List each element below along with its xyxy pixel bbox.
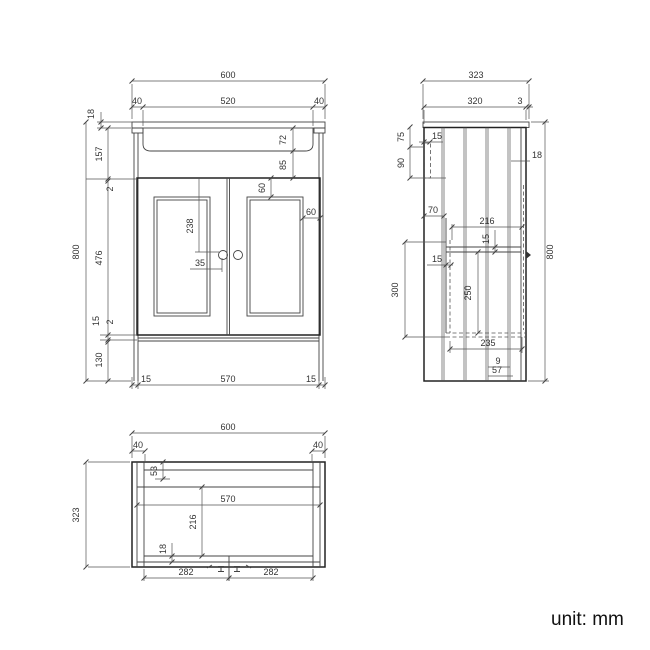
dim-plan-inner-span: 570 bbox=[220, 494, 235, 504]
dim-side-bracket-height: 90 bbox=[396, 158, 406, 168]
dim-front-bottom-rail: 15 bbox=[91, 316, 101, 326]
dim-front-plinth-height: 130 bbox=[94, 352, 104, 367]
dim-front-apron-height: 157 bbox=[94, 146, 104, 161]
dim-plan-front-rail: 18 bbox=[158, 544, 168, 554]
front-worktop bbox=[132, 122, 325, 128]
dim-side-shelf-to-bottom: 250 bbox=[463, 285, 473, 300]
dim-front-knob-drop: 238 bbox=[185, 218, 195, 233]
side-view: 323 320 3 75 90 15 18 70 216 15 15 300 2… bbox=[390, 70, 555, 384]
plan-extension-lines bbox=[88, 436, 325, 581]
dim-side-body-depth: 320 bbox=[467, 96, 482, 106]
front-view: 600 40 520 40 18 157 2 476 15 2 130 800 … bbox=[71, 70, 328, 389]
side-bracket-hidden bbox=[425, 143, 431, 178]
front-bottom-rails bbox=[138, 338, 319, 341]
side-worktop bbox=[423, 122, 529, 128]
dim-side-shelf-drop: 300 bbox=[390, 282, 400, 297]
dim-plan-back-rail: 53 bbox=[149, 466, 159, 476]
front-doors-outline bbox=[137, 178, 320, 335]
dim-plan-side-right: 40 bbox=[313, 440, 323, 450]
front-left-panel-outer bbox=[154, 197, 210, 316]
vanity-technical-drawing: 600 40 520 40 18 157 2 476 15 2 130 800 … bbox=[0, 0, 650, 650]
dim-side-bracket-depth: 15 bbox=[432, 131, 442, 141]
dim-front-door-height: 476 bbox=[94, 250, 104, 265]
front-left-panel-inner bbox=[157, 200, 207, 313]
front-right-tab bbox=[314, 128, 325, 133]
dim-side-overall-height: 800 bbox=[545, 244, 555, 259]
dim-plan-door-depth: 216 bbox=[188, 514, 198, 529]
front-left-knob bbox=[219, 251, 228, 260]
dim-plan-door-left: 282 bbox=[178, 567, 193, 577]
unit-label: unit: mm bbox=[551, 609, 624, 630]
dim-plan-side-left: 40 bbox=[133, 440, 143, 450]
dim-front-foot-right: 15 bbox=[306, 374, 316, 384]
front-side-panels bbox=[134, 133, 323, 381]
front-left-tab bbox=[132, 128, 143, 133]
dim-front-overall-width: 600 bbox=[220, 70, 235, 80]
dim-front-basin-width: 520 bbox=[220, 96, 235, 106]
dim-side-shelf-depth: 216 bbox=[479, 216, 494, 226]
technical-drawing-page: 600 40 520 40 18 157 2 476 15 2 130 800 … bbox=[0, 0, 650, 650]
dim-side-foot-b: 57 bbox=[492, 365, 502, 375]
dim-front-gap-bottom: 2 bbox=[105, 319, 115, 324]
plan-view: 600 40 40 323 53 570 216 18 282 282 bbox=[71, 422, 328, 581]
front-right-panel-inner bbox=[250, 200, 300, 313]
dim-side-side-inset: 15 bbox=[432, 254, 442, 264]
dim-front-basin-gap: 85 bbox=[278, 160, 288, 170]
front-right-knob bbox=[234, 251, 243, 260]
dim-front-panel-top-inset: 60 bbox=[257, 183, 267, 193]
dim-front-worktop-thickness: 18 bbox=[86, 109, 96, 119]
dim-side-plank-width: 70 bbox=[428, 205, 438, 215]
dim-side-overall-depth: 323 bbox=[468, 70, 483, 80]
plan-dimension-ticks bbox=[84, 431, 328, 581]
dim-front-panel-side-inset: 60 bbox=[306, 207, 316, 217]
dim-front-knob-offset: 35 bbox=[195, 258, 205, 268]
front-right-panel-outer bbox=[247, 197, 303, 316]
dim-front-overall-height: 800 bbox=[71, 244, 81, 259]
dim-front-overhang-right: 40 bbox=[314, 96, 324, 106]
side-knob bbox=[526, 251, 531, 259]
front-extension-lines bbox=[86, 84, 325, 389]
front-dimension-lines bbox=[86, 81, 325, 385]
dim-plan-overall-width: 600 bbox=[220, 422, 235, 432]
dim-plan-door-right: 282 bbox=[263, 567, 278, 577]
dim-front-overhang-left: 40 bbox=[132, 96, 142, 106]
dim-front-inner-span: 570 bbox=[220, 374, 235, 384]
dim-front-foot-left: 15 bbox=[141, 374, 151, 384]
dim-front-gap-top: 2 bbox=[105, 186, 115, 191]
dim-side-bracket-top: 75 bbox=[396, 132, 406, 142]
side-extension-lines bbox=[405, 84, 549, 381]
dim-side-front-lip: 3 bbox=[517, 96, 522, 106]
side-dimension-lines bbox=[405, 81, 545, 381]
dim-side-front-thickness: 18 bbox=[532, 150, 542, 160]
dim-plan-overall-depth: 323 bbox=[71, 507, 81, 522]
dim-side-bottom-depth: 235 bbox=[480, 338, 495, 348]
dim-front-basin-depth: 72 bbox=[278, 135, 288, 145]
dim-side-shelf-thickness: 15 bbox=[481, 234, 491, 244]
